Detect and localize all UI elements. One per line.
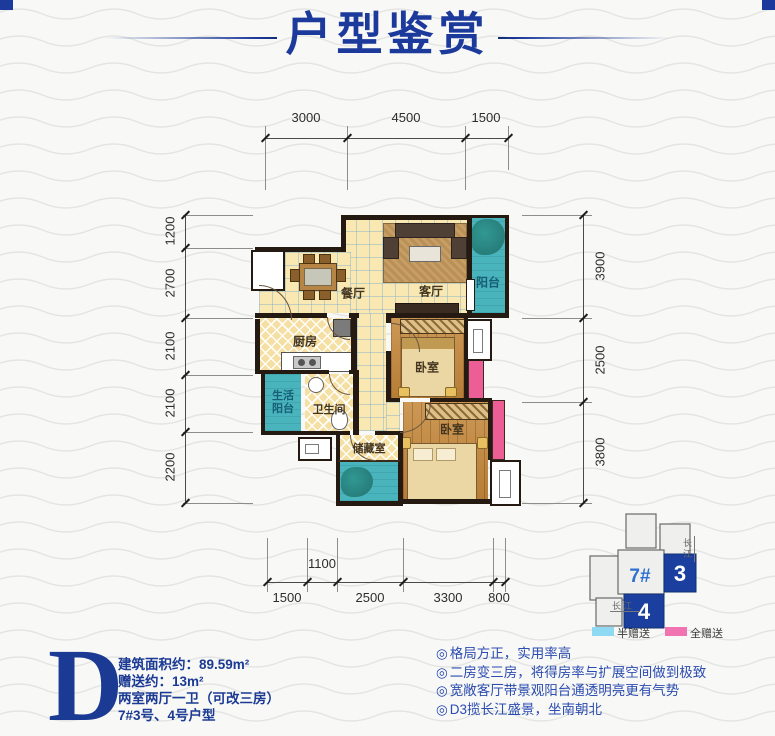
dim-ext <box>183 318 253 319</box>
dim-value: 2100 <box>163 389 178 418</box>
room-label-bedroom1: 卧室 <box>415 359 439 376</box>
wardrobe-bedroom2 <box>425 403 490 420</box>
wall <box>386 313 391 323</box>
chair <box>319 290 331 300</box>
wall <box>341 215 471 220</box>
wall <box>505 215 509 316</box>
nightstand <box>477 437 488 449</box>
ac-unit <box>305 444 319 454</box>
dim-line-bottom <box>267 582 505 583</box>
stove <box>293 356 321 369</box>
feature-item: ◎宽敞客厅带景观阳台通透明亮更有气势 <box>436 682 706 701</box>
title-line-left <box>105 37 277 39</box>
wall <box>398 431 403 501</box>
info-line-area: 建筑面积约：89.59m² <box>118 656 280 673</box>
wall <box>386 398 400 402</box>
wall <box>467 215 472 281</box>
wall <box>336 431 340 506</box>
dim-value: 2500 <box>593 346 608 375</box>
bay-window-bedroom1 <box>466 319 492 361</box>
wall <box>398 499 492 504</box>
feature-text: 宽敞客厅带景观阳台通透明亮更有气势 <box>450 683 680 698</box>
building-block <box>626 514 656 548</box>
ac-platform <box>298 437 332 461</box>
feature-bullet: ◎ <box>436 665 448 680</box>
dim-line-right <box>583 215 584 503</box>
legend-swatch-full-gift <box>665 627 687 636</box>
chair <box>336 269 346 282</box>
info-line-layout: 两室两厅一卫（可改三房） <box>118 690 280 707</box>
wall <box>261 370 265 435</box>
wall <box>353 370 359 435</box>
wall <box>386 351 391 402</box>
dim-ext <box>183 215 253 216</box>
dim-ext <box>267 538 268 592</box>
corridor-floor <box>357 313 386 431</box>
river-line-bottom <box>610 611 640 612</box>
legend-swatch-half-gift <box>592 627 614 636</box>
floorplan-poster: 户型鉴赏 <box>0 0 775 736</box>
info-line-units: 7#3号、4号户型 <box>118 707 280 724</box>
wall <box>255 370 329 374</box>
unit-info: 建筑面积约：89.59m² 赠送约：13m² 两室两厅一卫（可改三房） 7#3号… <box>118 656 280 724</box>
wall-window <box>469 215 509 218</box>
wall <box>386 313 509 318</box>
feature-bullet: ◎ <box>436 702 448 717</box>
river-line-side <box>694 536 695 562</box>
wall <box>261 431 305 435</box>
armchair <box>451 237 467 259</box>
floor-plan: 餐厅 客厅 阳台 厨房 生活阳台 卫生间 储藏室 卧室 卧室 <box>255 215 517 507</box>
feature-text: D3揽长江盛景，坐南朝北 <box>450 702 602 717</box>
dim-ext <box>337 538 338 592</box>
nightstand <box>398 387 410 397</box>
dining-table <box>299 263 337 291</box>
dim-ext <box>508 126 509 170</box>
river-label-side: 长江 <box>681 538 694 560</box>
dim-ext <box>183 248 253 249</box>
dim-value: 1200 <box>163 217 178 246</box>
dim-ext <box>403 538 404 592</box>
room-label-storage: 储藏室 <box>353 440 386 456</box>
legend-label-full-gift: 全赠送 <box>690 625 723 641</box>
window-glazing <box>499 470 511 498</box>
dim-ext <box>183 503 253 504</box>
chair <box>290 269 300 282</box>
room-label-living: 客厅 <box>419 283 443 300</box>
sofa <box>395 223 455 238</box>
room-label-service-balcony: 生活阳台 <box>270 390 296 416</box>
dim-value: 2700 <box>163 269 178 298</box>
dim-value: 2200 <box>163 453 178 482</box>
room-label-bedroom2: 卧室 <box>440 421 464 438</box>
wall <box>305 431 350 435</box>
wall <box>351 313 357 374</box>
chair <box>319 254 331 264</box>
info-line-gift: 赠送约：13m² <box>118 673 280 690</box>
entry-porch <box>251 250 285 291</box>
building-locator: 7# 3 4 <box>588 512 700 632</box>
burner <box>309 359 316 366</box>
dim-ext <box>493 538 494 592</box>
legend-label-half-gift: 半赠送 <box>617 625 650 641</box>
wall <box>430 398 492 402</box>
unit3-label: 3 <box>674 561 686 586</box>
feature-text: 格局方正，实用率高 <box>450 646 572 661</box>
feature-text: 二房变三房，将得房率与扩展空间做到极致 <box>450 665 707 680</box>
wall <box>488 398 492 460</box>
burner <box>298 359 305 366</box>
room-label-balcony: 阳台 <box>476 274 500 291</box>
pillow <box>436 448 456 461</box>
dim-line-left <box>185 215 186 503</box>
coffee-table <box>409 246 441 262</box>
feature-list: ◎格局方正，实用率高 ◎二房变三房，将得房率与扩展空间做到极致 ◎宽敞客厅带景观… <box>436 645 706 719</box>
room-label-dining: 餐厅 <box>341 285 365 302</box>
unit-type-letter: D <box>48 644 123 728</box>
dining-table-top <box>304 268 332 286</box>
dim-value: 1500 <box>472 110 501 125</box>
bed-bedroom2 <box>407 443 477 500</box>
nightstand <box>445 387 457 397</box>
dim-value: 2500 <box>356 590 385 605</box>
building-number-label: 7# <box>629 566 651 587</box>
feature-item: ◎D3揽长江盛景，坐南朝北 <box>436 701 706 720</box>
window-glazing <box>473 329 483 353</box>
dim-ext <box>505 538 506 592</box>
dim-ext <box>183 432 253 433</box>
page-title: 户型鉴赏 <box>0 4 775 64</box>
wall <box>336 501 403 506</box>
feature-bullet: ◎ <box>436 646 448 661</box>
bay-window-bedroom2 <box>490 460 521 506</box>
chair <box>303 254 315 264</box>
armchair <box>383 237 399 259</box>
gift-zone-bedroom2 <box>492 400 505 460</box>
dim-value: 1100 <box>308 556 336 571</box>
chair <box>303 290 315 300</box>
feature-item: ◎二房变三房，将得房率与扩展空间做到极致 <box>436 664 706 683</box>
dim-value: 1500 <box>273 590 302 605</box>
dim-value: 4500 <box>392 110 421 125</box>
pillow <box>413 448 433 461</box>
room-label-kitchen: 厨房 <box>293 333 317 350</box>
dim-value: 3900 <box>593 252 608 281</box>
feature-bullet: ◎ <box>436 683 448 698</box>
feature-item: ◎格局方正，实用率高 <box>436 645 706 664</box>
dim-ext <box>183 375 253 376</box>
dim-value: 3000 <box>292 110 321 125</box>
wall <box>255 319 260 374</box>
balcony-slider-window <box>466 279 475 311</box>
dim-value: 800 <box>488 590 510 605</box>
title-line-right <box>498 37 670 39</box>
bathroom-sink <box>308 377 324 393</box>
corridor-floor-2 <box>386 402 400 431</box>
dim-line-top <box>265 138 508 139</box>
dim-value: 3300 <box>434 590 463 605</box>
dim-value: 2100 <box>163 332 178 361</box>
room-label-bathroom: 卫生间 <box>313 401 346 417</box>
dim-value: 3800 <box>593 438 608 467</box>
gift-zone-bedroom1 <box>468 355 484 400</box>
